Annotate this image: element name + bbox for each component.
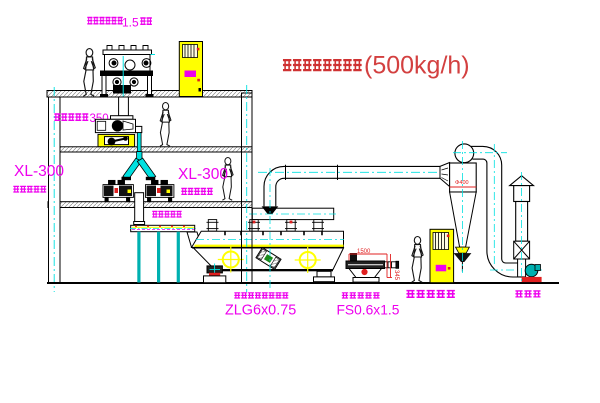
- svg-text:FS0.6x1.5: FS0.6x1.5: [337, 303, 400, 318]
- svg-text:XL-300: XL-300: [14, 163, 64, 180]
- svg-text:1.5: 1.5: [122, 16, 139, 30]
- svg-text:ZLG6x0.75: ZLG6x0.75: [225, 303, 296, 319]
- svg-text:(500kg/h): (500kg/h): [364, 52, 470, 80]
- svg-text:Φ400: Φ400: [455, 180, 469, 186]
- svg-text:1500: 1500: [357, 249, 371, 255]
- svg-text:XL-300: XL-300: [178, 166, 228, 183]
- svg-text:345: 345: [393, 270, 399, 281]
